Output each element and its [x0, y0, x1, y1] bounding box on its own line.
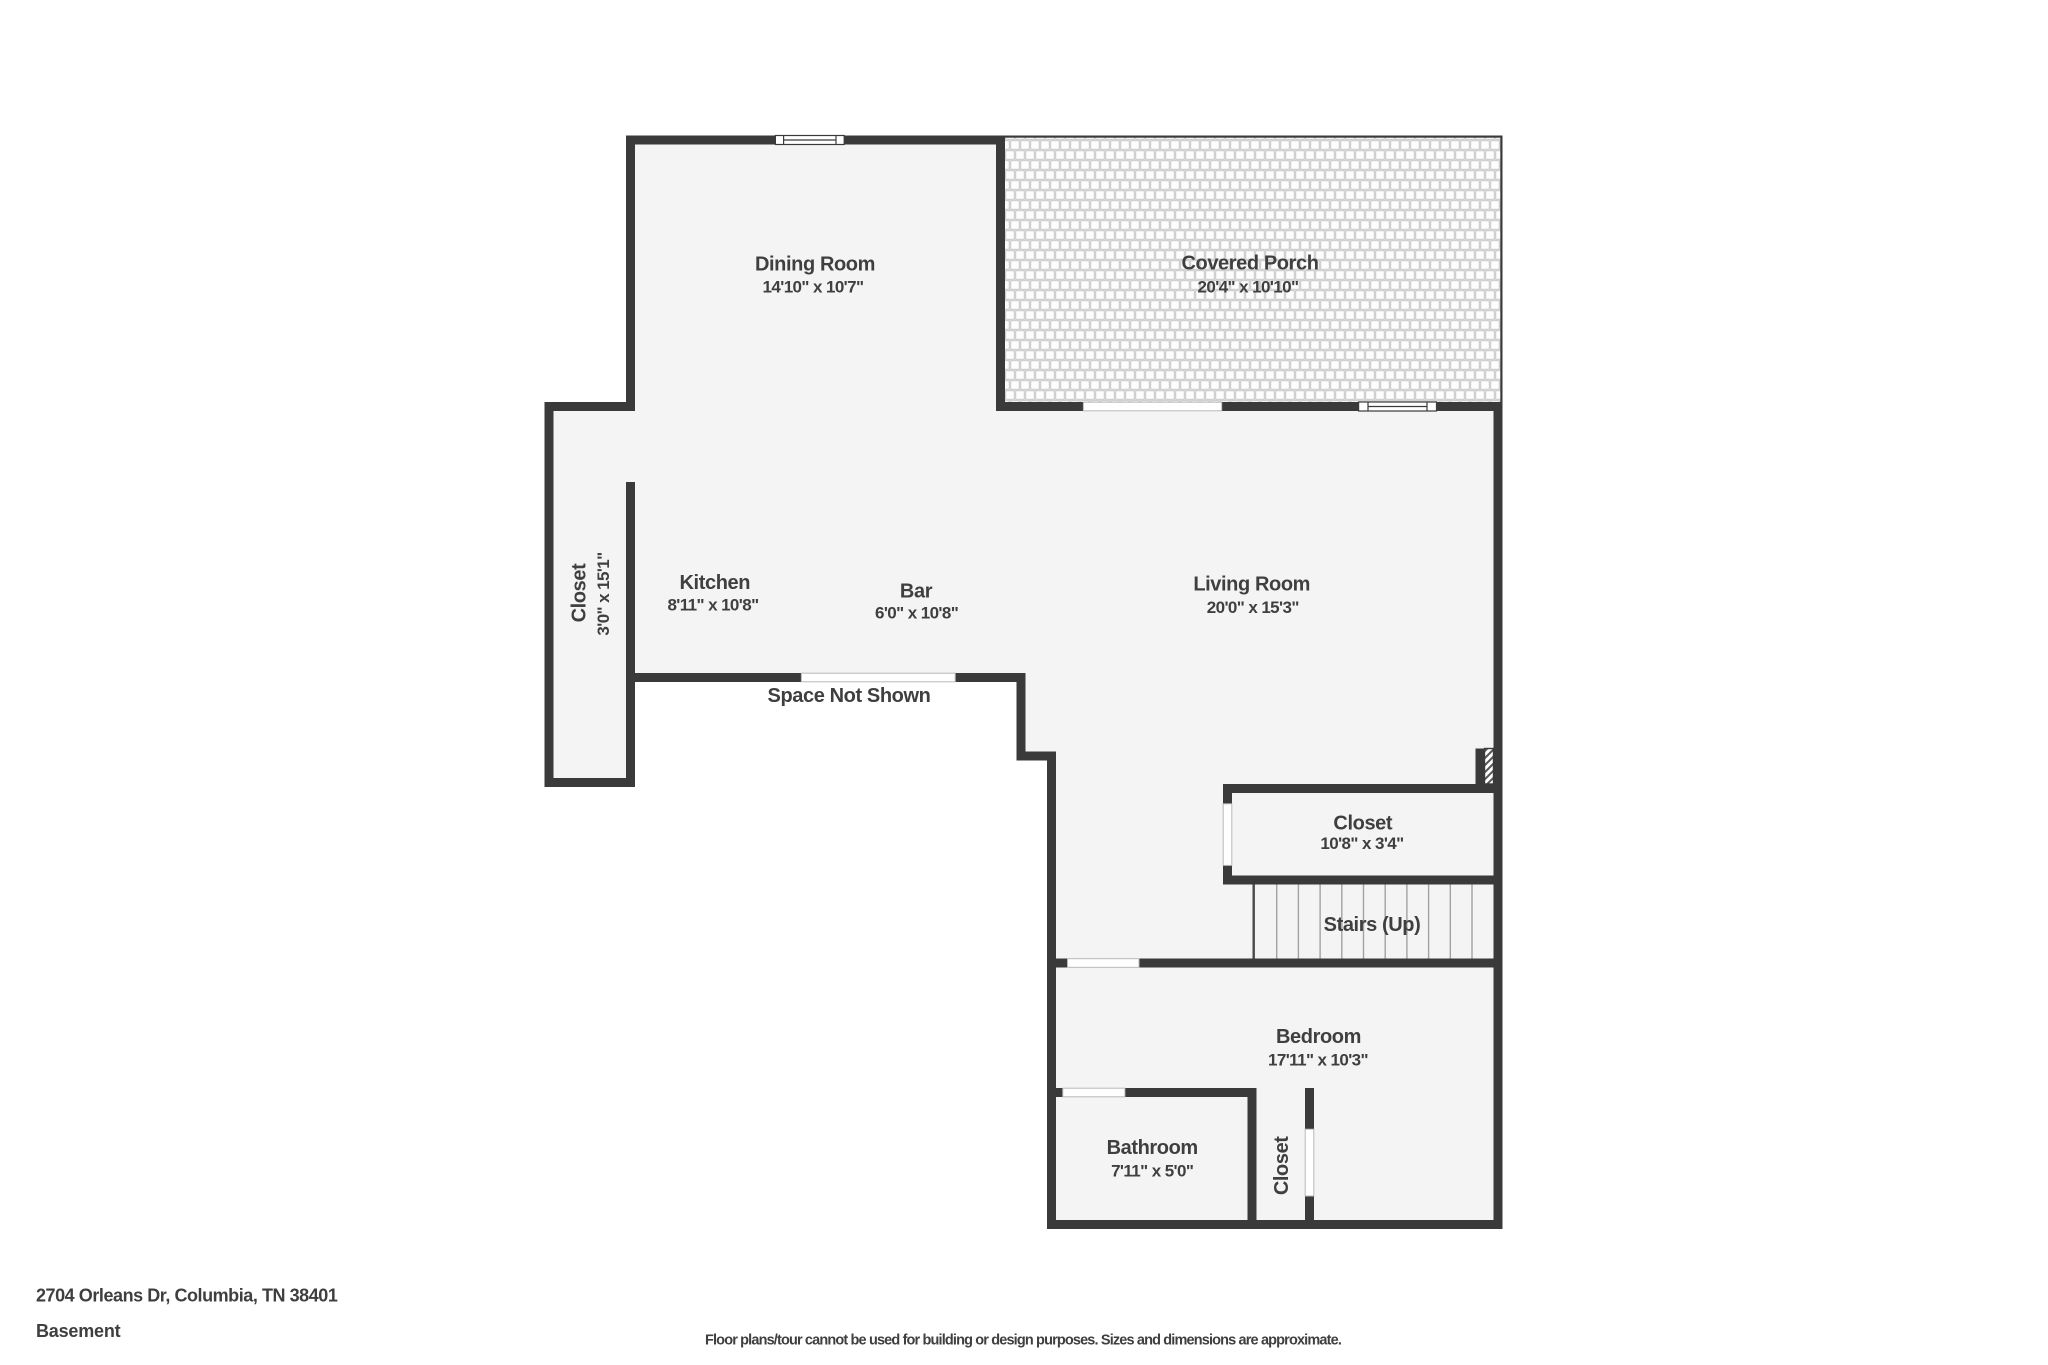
svg-text:Bedroom: Bedroom — [1276, 1026, 1361, 1048]
svg-text:Closet: Closet — [1333, 813, 1392, 835]
svg-text:Closet: Closet — [569, 563, 591, 622]
svg-text:7'11" x 5'0": 7'11" x 5'0" — [1111, 1162, 1193, 1181]
svg-text:17'11" x 10'3": 17'11" x 10'3" — [1268, 1051, 1368, 1070]
svg-text:10'8" x 3'4": 10'8" x 3'4" — [1320, 834, 1403, 853]
svg-text:Basement: Basement — [36, 1321, 121, 1341]
svg-text:Living Room: Living Room — [1193, 573, 1310, 595]
svg-text:3'0" x 15'1": 3'0" x 15'1" — [594, 552, 613, 635]
svg-text:Bar: Bar — [900, 580, 933, 602]
svg-text:Stairs (Up): Stairs (Up) — [1324, 914, 1421, 936]
svg-text:Space Not Shown: Space Not Shown — [768, 685, 931, 707]
svg-text:Kitchen: Kitchen — [680, 572, 751, 594]
svg-text:Covered Porch: Covered Porch — [1181, 253, 1318, 275]
svg-text:Floor plans/tour cannot be use: Floor plans/tour cannot be used for buil… — [705, 1333, 1342, 1349]
svg-text:8'11" x 10'8": 8'11" x 10'8" — [667, 596, 758, 615]
svg-text:6'0" x 10'8": 6'0" x 10'8" — [875, 604, 958, 623]
svg-text:Dining Room: Dining Room — [755, 253, 875, 275]
svg-text:20'0" x 15'3": 20'0" x 15'3" — [1207, 598, 1299, 617]
svg-text:14'10" x 10'7": 14'10" x 10'7" — [763, 277, 864, 296]
svg-text:20'4" x 10'10": 20'4" x 10'10" — [1198, 278, 1299, 297]
svg-text:2704 Orleans Dr, Columbia, TN: 2704 Orleans Dr, Columbia, TN 38401 — [36, 1286, 338, 1306]
svg-text:Bathroom: Bathroom — [1107, 1137, 1198, 1159]
svg-text:Closet: Closet — [1271, 1136, 1293, 1195]
